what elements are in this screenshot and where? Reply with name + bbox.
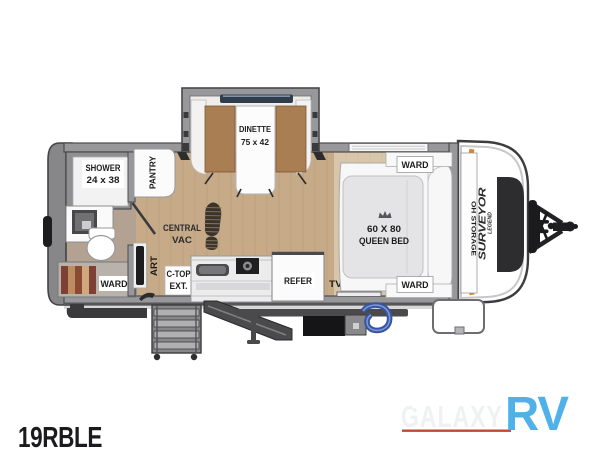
svg-text:REFER: REFER — [284, 276, 312, 286]
svg-text:DINETTE: DINETTE — [239, 124, 271, 134]
svg-text:EXT.: EXT. — [170, 281, 188, 291]
svg-text:VAC: VAC — [172, 235, 192, 246]
svg-text:QUEEN BED: QUEEN BED — [359, 236, 409, 247]
svg-text:RV: RV — [505, 388, 569, 441]
svg-text:75 x 42: 75 x 42 — [241, 137, 269, 147]
svg-text:24 x 38: 24 x 38 — [87, 175, 120, 185]
svg-text:WARD: WARD — [101, 279, 128, 289]
svg-text:SHOWER: SHOWER — [86, 163, 122, 173]
svg-text:WARD: WARD — [402, 280, 429, 290]
svg-text:ART: ART — [149, 255, 159, 276]
svg-text:WARD: WARD — [402, 160, 429, 170]
svg-text:CENTRAL: CENTRAL — [163, 223, 201, 234]
svg-text:19RBLE: 19RBLE — [18, 422, 102, 454]
svg-text:60 X 80: 60 X 80 — [367, 224, 401, 235]
svg-text:LEGEND: LEGEND — [488, 212, 494, 234]
svg-text:C-TOP: C-TOP — [167, 269, 191, 279]
svg-text:PANTRY: PANTRY — [149, 155, 158, 189]
svg-text:OH STORAGE: OH STORAGE — [470, 201, 477, 256]
